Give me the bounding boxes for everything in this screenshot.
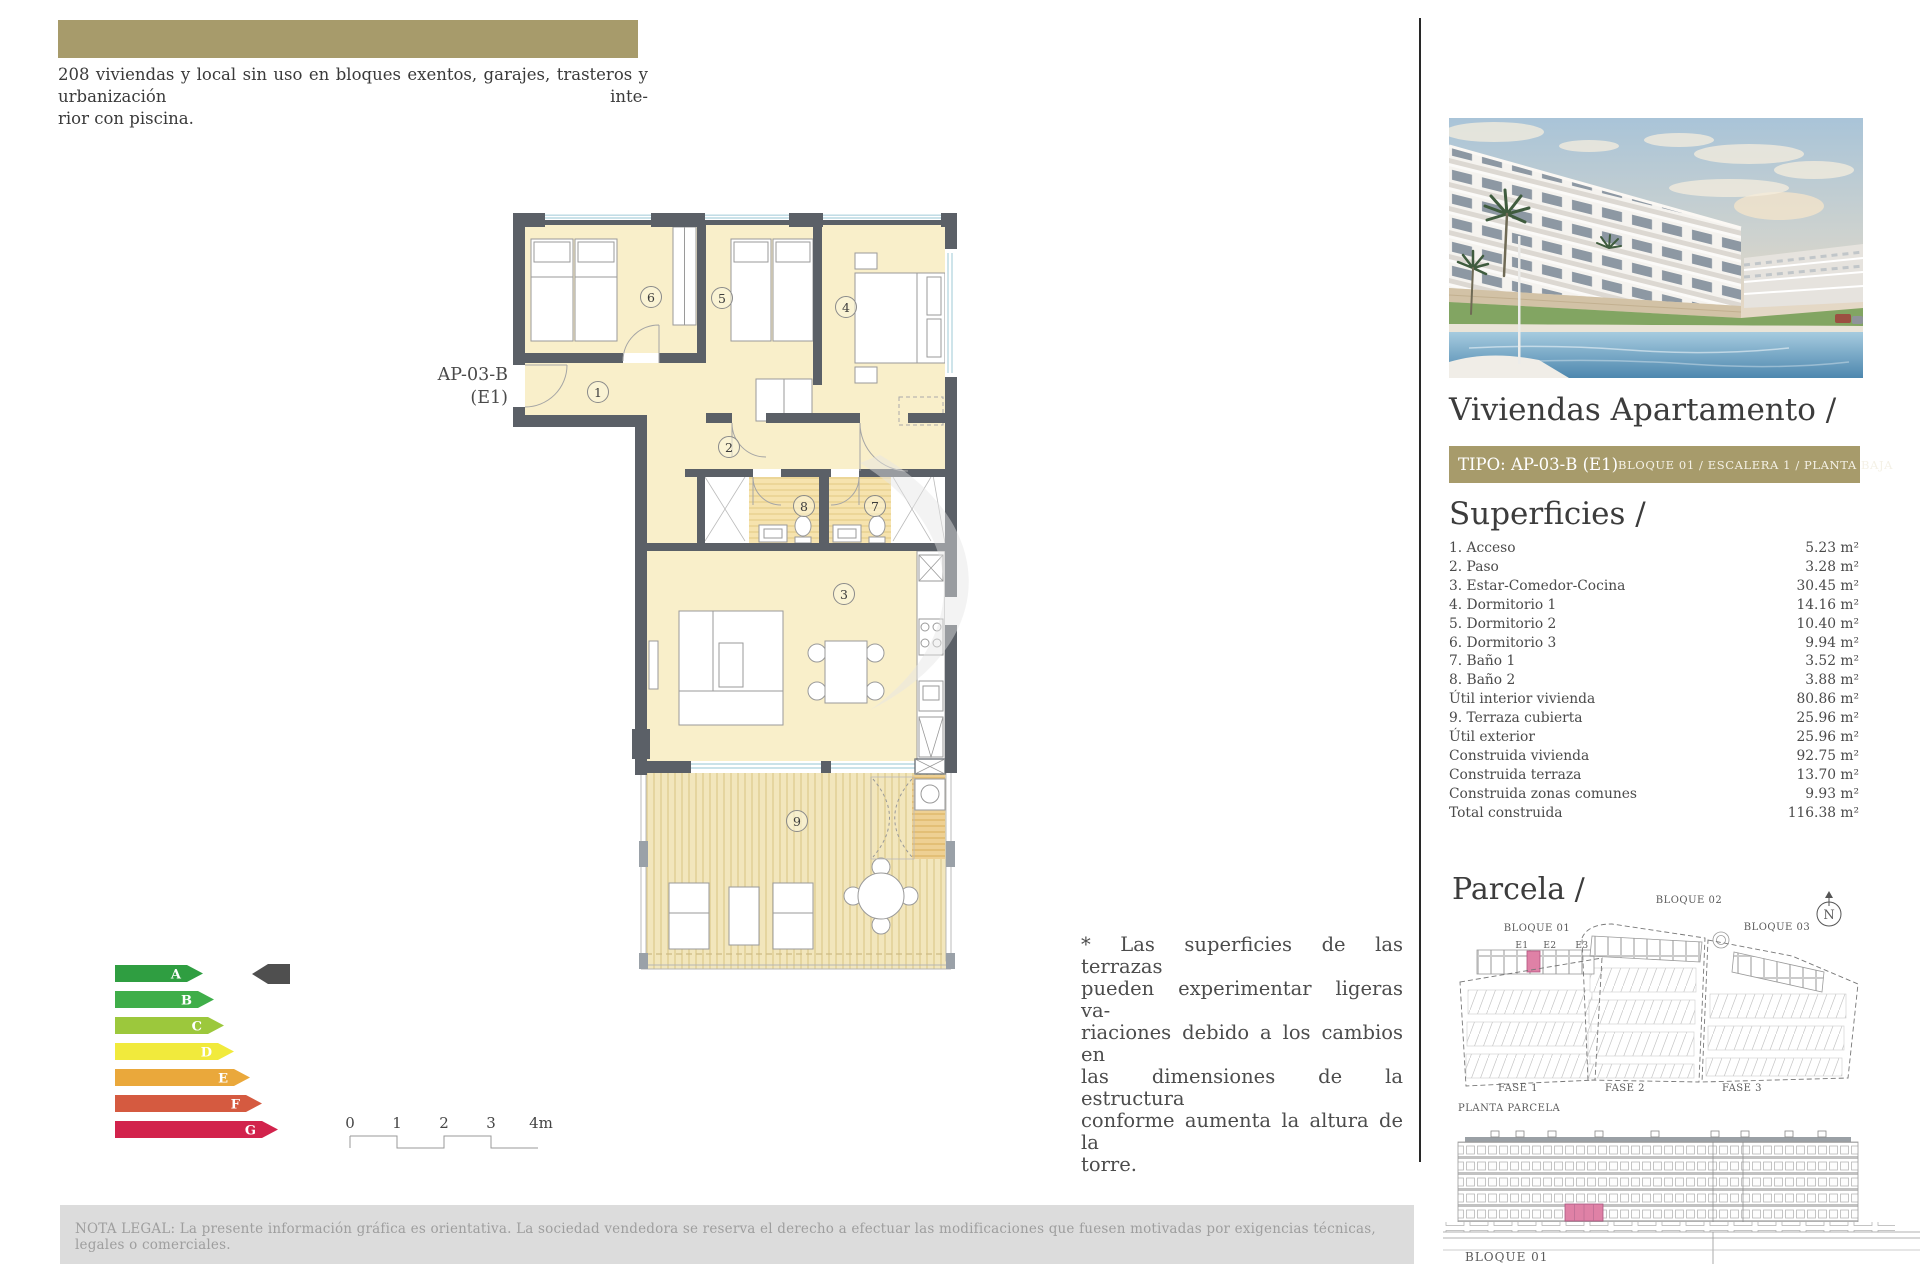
tipo-location: BLOQUE 01 / ESCALERA 1 / PLANTA BAJA (1618, 458, 1901, 472)
north-arrow-icon: N (1817, 891, 1841, 926)
energy-grade-d (115, 1043, 234, 1060)
superficies-row: Total construida116.38 m² (1449, 804, 1859, 823)
svg-text:E: E (218, 1072, 228, 1087)
tipo-bar: TIPO: AP-03-B (E1) BLOQUE 01 / ESCALERA … (1449, 446, 1860, 483)
energy-pointer-icon (252, 964, 290, 984)
brand-bar (58, 20, 638, 58)
svg-text:A: A (170, 968, 182, 983)
room-number-1: 1 (587, 381, 609, 403)
superficies-row-value: 92.75 m² (1797, 747, 1860, 766)
superficies-row: 1. Acceso5.23 m² (1449, 539, 1859, 558)
unit-code: AP-03-B (378, 364, 508, 387)
svg-text:B: B (181, 994, 192, 1009)
superficies-row-label: Útil interior vivienda (1449, 690, 1595, 709)
brochure-page: 208 viviendas y local sin uso en bloques… (0, 0, 1920, 1280)
superficies-row-value: 80.86 m² (1797, 690, 1860, 709)
svg-text:0: 0 (345, 1114, 355, 1132)
superficies-row-label: Construida vivienda (1449, 747, 1589, 766)
svg-text:N: N (1823, 908, 1834, 923)
column-divider (1419, 18, 1421, 1162)
room-number-4: 4 (835, 296, 857, 318)
energy-grade-b (115, 991, 214, 1008)
superficies-row: 5. Dormitorio 210.40 m² (1449, 615, 1859, 634)
superficies-row-value: 9.93 m² (1805, 785, 1859, 804)
superficies-row: Construida vivienda92.75 m² (1449, 747, 1859, 766)
room-number-8: 8 (793, 495, 815, 517)
bloque03-footprint (1732, 952, 1824, 992)
superficies-row-value: 25.96 m² (1797, 728, 1860, 747)
superficies-row-label: 3. Estar-Comedor-Cocina (1449, 577, 1625, 596)
unit-label: AP-03-B (E1) (378, 364, 508, 410)
superficies-row-label: 7. Baño 1 (1449, 652, 1515, 671)
tipo-label: TIPO: AP-03-B (E1) (1449, 455, 1618, 474)
terrace-note: * Las superficies de las terrazas pueden… (1081, 934, 1403, 1176)
superficies-row-value: 3.28 m² (1805, 558, 1859, 577)
room-number-6: 6 (640, 286, 662, 308)
highlighted-unit (1527, 951, 1540, 972)
superficies-row-value: 3.88 m² (1805, 671, 1859, 690)
superficies-row-label: Total construida (1449, 804, 1563, 823)
svg-text:FASE 3: FASE 3 (1722, 1083, 1762, 1094)
bloque01-label: BLOQUE 01 (1504, 923, 1571, 934)
superficies-row-label: 6. Dormitorio 3 (1449, 634, 1556, 653)
scale-bar: 0 1 2 3 4m (338, 1112, 568, 1160)
svg-text:G: G (245, 1124, 256, 1139)
site-plan-caption: PLANTA PARCELA (1458, 1103, 1561, 1114)
svg-text:2: 2 (439, 1114, 449, 1132)
room-number-7: 7 (864, 495, 886, 517)
energy-grade-c (115, 1017, 224, 1034)
svg-text:1: 1 (392, 1114, 402, 1132)
superficies-row: Construida terraza13.70 m² (1449, 766, 1859, 785)
superficies-row-value: 25.96 m² (1797, 709, 1860, 728)
bloque03-label: BLOQUE 03 (1744, 922, 1811, 933)
room-number-2: 2 (718, 436, 740, 458)
building-render-photo (1449, 118, 1863, 378)
superficies-row: Útil exterior25.96 m² (1449, 728, 1859, 747)
description-line: 208 viviendas y local sin uso en bloques… (58, 64, 648, 108)
superficies-row-value: 14.16 m² (1797, 596, 1860, 615)
elevation-drawing: BLOQUE 01 (1443, 1128, 1920, 1270)
svg-text:E3: E3 (1575, 941, 1588, 951)
superficies-row-value: 10.40 m² (1797, 615, 1860, 634)
superficies-row: Útil interior vivienda80.86 m² (1449, 690, 1859, 709)
svg-text:C: C (192, 1020, 202, 1035)
superficies-row-value: 3.52 m² (1805, 652, 1859, 671)
superficies-row: Construida zonas comunes9.93 m² (1449, 785, 1859, 804)
superficies-title: Superficies / (1449, 496, 1646, 532)
superficies-row-label: 2. Paso (1449, 558, 1499, 577)
legal-band: NOTA LEGAL: La presente información gráf… (60, 1205, 1414, 1264)
site-plan: N BLOQUE 01 BLOQUE 02 BLOQUE 03 (1452, 890, 1867, 1128)
superficies-row: 2. Paso3.28 m² (1449, 558, 1859, 577)
bloque02-footprint (1590, 936, 1702, 962)
watermark (850, 455, 1030, 715)
superficies-row: 3. Estar-Comedor-Cocina30.45 m² (1449, 577, 1859, 596)
superficies-row-label: 8. Baño 2 (1449, 671, 1515, 690)
superficies-row: 6. Dormitorio 39.94 m² (1449, 634, 1859, 653)
superficies-row-label: 9. Terraza cubierta (1449, 709, 1583, 728)
superficies-row-label: Construida terraza (1449, 766, 1581, 785)
description-line: rior con piscina. (58, 108, 648, 130)
bloque02-label: BLOQUE 02 (1656, 895, 1723, 906)
svg-text:3: 3 (486, 1114, 496, 1132)
legal-note: NOTA LEGAL: La presente información gráf… (60, 1205, 1414, 1253)
svg-text:FASE 2: FASE 2 (1605, 1083, 1645, 1094)
svg-text:E1: E1 (1515, 941, 1528, 951)
superficies-row-label: Construida zonas comunes (1449, 785, 1637, 804)
superficies-row-value: 5.23 m² (1805, 539, 1859, 558)
superficies-row-value: 13.70 m² (1797, 766, 1860, 785)
room-number-3: 3 (833, 583, 855, 605)
superficies-row: 7. Baño 13.52 m² (1449, 652, 1859, 671)
svg-text:E2: E2 (1543, 941, 1556, 951)
energy-grade-e (115, 1069, 250, 1086)
unit-stair: (E1) (378, 387, 508, 410)
svg-text:FASE 1: FASE 1 (1498, 1083, 1538, 1094)
superficies-table: 1. Acceso5.23 m²2. Paso3.28 m²3. Estar-C… (1449, 539, 1859, 823)
superficies-row: 9. Terraza cubierta25.96 m² (1449, 709, 1859, 728)
superficies-row-value: 116.38 m² (1788, 804, 1859, 823)
superficies-row-label: 4. Dormitorio 1 (1449, 596, 1556, 615)
energy-grade-a (115, 965, 203, 982)
superficies-row: 8. Baño 23.88 m² (1449, 671, 1859, 690)
superficies-row-label: Útil exterior (1449, 728, 1535, 747)
superficies-row-value: 9.94 m² (1805, 634, 1859, 653)
svg-text:D: D (201, 1046, 212, 1061)
superficies-row-label: 5. Dormitorio 2 (1449, 615, 1556, 634)
superficies-row: 4. Dormitorio 114.16 m² (1449, 596, 1859, 615)
project-description: 208 viviendas y local sin uso en bloques… (58, 64, 648, 130)
page-title: Viviendas Apartamento / (1449, 392, 1869, 428)
elevation-caption: BLOQUE 01 (1465, 1250, 1548, 1264)
svg-text:4m: 4m (529, 1114, 553, 1132)
svg-text:F: F (231, 1098, 241, 1113)
room-number-5: 5 (711, 287, 733, 309)
room-number-9: 9 (786, 810, 808, 832)
superficies-row-value: 30.45 m² (1797, 577, 1860, 596)
superficies-row-label: 1. Acceso (1449, 539, 1516, 558)
energy-rating-chart: A B C D E F G (113, 958, 308, 1148)
